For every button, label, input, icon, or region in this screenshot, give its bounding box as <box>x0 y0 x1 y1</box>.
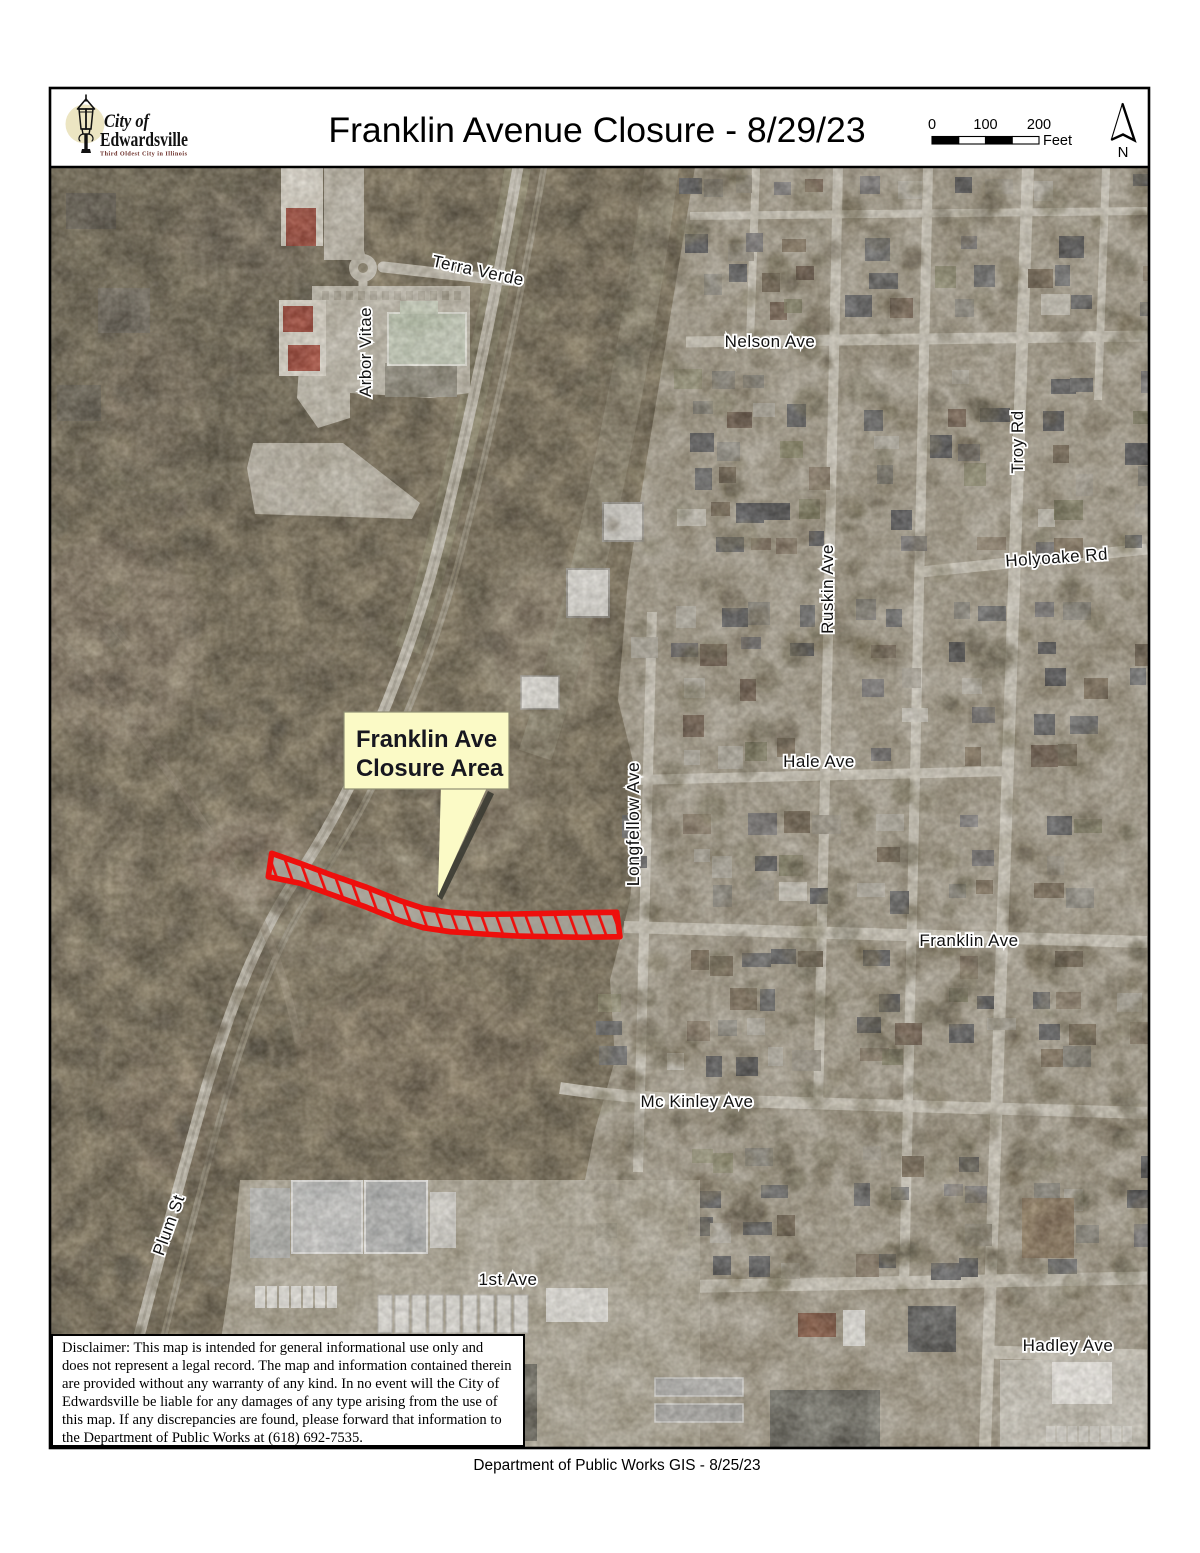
svg-text:Disclaimer: This map is intend: Disclaimer: This map is intended for gen… <box>62 1340 484 1356</box>
svg-text:200: 200 <box>1027 117 1051 133</box>
svg-text:Ruskin Ave: Ruskin Ave <box>818 544 837 634</box>
svg-text:are provided without any warra: are provided without any warranty of any… <box>62 1376 499 1392</box>
svg-text:Hale Ave: Hale Ave <box>783 752 855 771</box>
svg-text:Third Oldest City in Illinois: Third Oldest City in Illinois <box>100 151 188 158</box>
svg-text:does not represent a legal rec: does not represent a legal record. The m… <box>62 1358 512 1374</box>
svg-text:the Department of Public Works: the Department of Public Works at (618) … <box>62 1430 363 1446</box>
svg-text:Longfellow Ave: Longfellow Ave <box>623 762 643 886</box>
svg-text:Franklin Avenue Closure - 8/29: Franklin Avenue Closure - 8/29/23 <box>328 110 865 150</box>
svg-text:0: 0 <box>928 117 936 133</box>
svg-text:this map. If any discrepancies: this map. If any discrepancies are found… <box>62 1412 502 1428</box>
svg-text:Franklin Ave: Franklin Ave <box>356 726 497 753</box>
svg-text:Closure Area: Closure Area <box>356 755 504 782</box>
svg-text:Hadley Ave: Hadley Ave <box>1023 1336 1114 1355</box>
svg-text:Troy Rd: Troy Rd <box>1008 410 1027 473</box>
svg-text:Edwardsville: Edwardsville <box>100 129 188 151</box>
svg-text:Arbor Vitae: Arbor Vitae <box>356 307 375 397</box>
svg-text:Department of Public Works GIS: Department of Public Works GIS - 8/25/23 <box>473 1457 760 1474</box>
svg-text:Mc Kinley Ave: Mc Kinley Ave <box>641 1092 754 1111</box>
svg-text:Nelson Ave: Nelson Ave <box>725 332 816 351</box>
svg-text:100: 100 <box>973 117 997 133</box>
svg-text:Feet: Feet <box>1043 133 1072 149</box>
svg-text:N: N <box>1118 144 1129 161</box>
svg-text:1st Ave: 1st Ave <box>479 1270 538 1289</box>
svg-text:Franklin Ave: Franklin Ave <box>919 931 1018 950</box>
svg-text:Edwardsville be liable for any: Edwardsville be liable for any damages o… <box>62 1394 498 1410</box>
